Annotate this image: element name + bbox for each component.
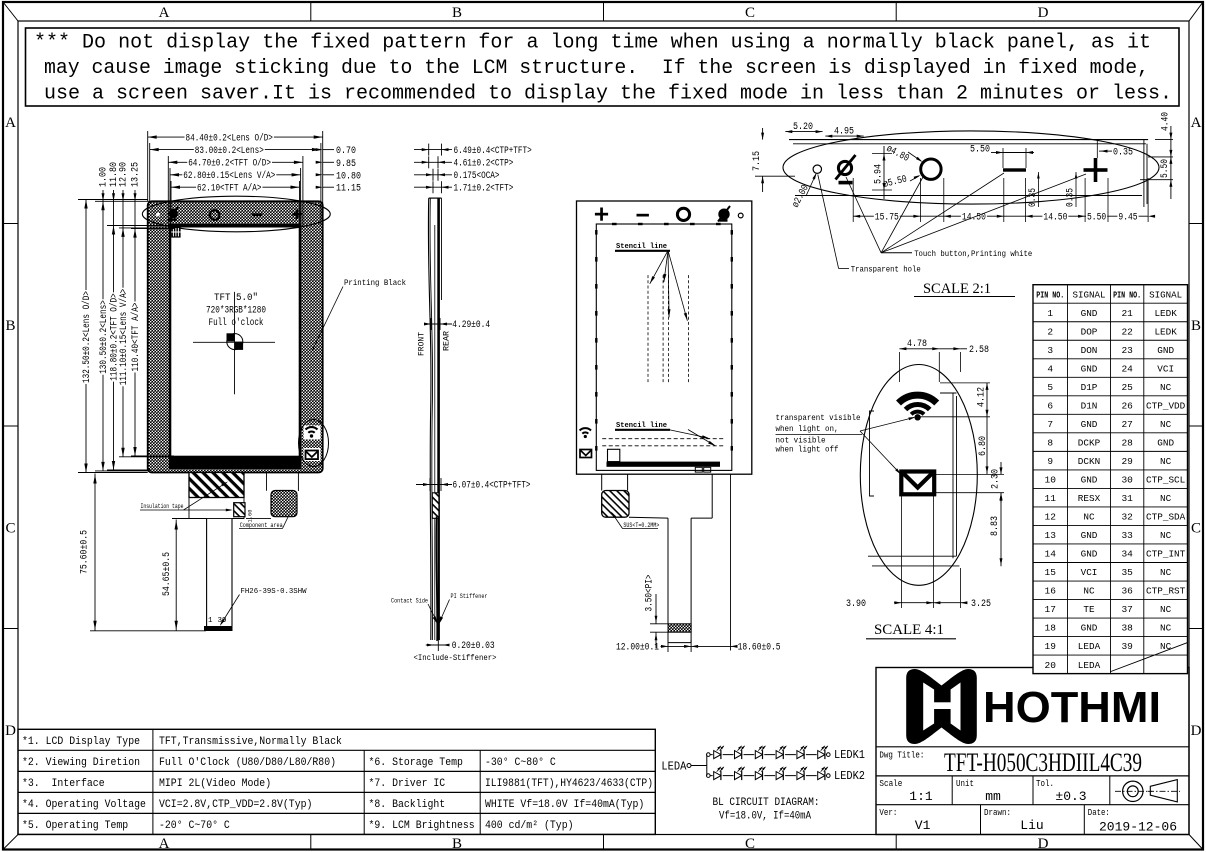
svg-text:CTP_RST: CTP_RST [1146, 586, 1185, 597]
svg-text:Liu: Liu [1020, 818, 1043, 833]
svg-text:62.10<TFT A/A>: 62.10<TFT A/A> [197, 182, 261, 194]
svg-text:may cause image sticking due t: may cause image sticking due to the LCM … [44, 57, 1149, 80]
svg-text:18: 18 [1045, 623, 1057, 634]
svg-text:B: B [5, 318, 15, 334]
svg-text:CTP_INT: CTP_INT [1146, 549, 1185, 560]
svg-text:4.29±0.4: 4.29±0.4 [452, 320, 490, 331]
svg-text:DOP: DOP [1081, 326, 1098, 337]
svg-text:SIGNAL: SIGNAL [1073, 289, 1106, 300]
svg-text:-20° C~70° C: -20° C~70° C [159, 820, 230, 832]
svg-text:CTP_SDA: CTP_SDA [1146, 512, 1185, 523]
svg-text:B: B [452, 5, 462, 21]
svg-text:D: D [1038, 5, 1049, 21]
svg-text:35: 35 [1121, 567, 1133, 578]
svg-text:Tol.: Tol. [1036, 779, 1054, 789]
svg-text:VCI: VCI [1081, 567, 1098, 578]
svg-text:4: 4 [1047, 363, 1053, 374]
svg-text:10: 10 [1045, 475, 1057, 486]
svg-text:WHITE Vf=18.0V If=40mA(Typ): WHITE Vf=18.0V If=40mA(Typ) [485, 799, 644, 811]
svg-text:Full O'Clock (U80/D80/L80/R80): Full O'Clock (U80/D80/L80/R80) [159, 757, 336, 769]
svg-text:13: 13 [1045, 530, 1057, 541]
svg-text:29: 29 [1121, 456, 1133, 467]
svg-text:11.15: 11.15 [336, 184, 361, 195]
svg-text:*** Do not display the fixed p: *** Do not display the fixed pattern for… [34, 32, 1151, 55]
svg-text:38: 38 [1121, 623, 1133, 634]
svg-text:5.50: 5.50 [970, 145, 990, 156]
svg-text:Contact Side: Contact Side [391, 598, 428, 605]
svg-text:13.25: 13.25 [131, 162, 142, 187]
svg-text:1.71±0.2<TFT>: 1.71±0.2<TFT> [454, 183, 514, 194]
svg-text:0.35: 0.35 [1066, 188, 1077, 207]
svg-text:transparent visible: transparent visible [776, 414, 861, 423]
svg-text:400 cd/m² (Typ): 400 cd/m² (Typ) [485, 820, 574, 832]
svg-text:4.78: 4.78 [907, 339, 927, 350]
svg-text:3.50<PI>: 3.50<PI> [645, 575, 656, 612]
svg-text:NC: NC [1160, 567, 1171, 578]
svg-text:GND: GND [1157, 438, 1174, 449]
svg-text:TFT,Transmissive,Normally Blac: TFT,Transmissive,Normally Black [159, 736, 342, 748]
svg-text:37: 37 [1121, 604, 1132, 615]
svg-text:VCI: VCI [1157, 363, 1174, 374]
svg-text:7.15: 7.15 [752, 151, 763, 171]
svg-text:*6. Storage Temp: *6. Storage Temp [369, 757, 463, 769]
svg-text:0.20±0.03: 0.20±0.03 [452, 641, 495, 652]
svg-text:16: 16 [1045, 586, 1057, 597]
svg-text:6.80: 6.80 [978, 436, 989, 456]
svg-text:Unit: Unit [956, 779, 974, 789]
svg-text:B: B [1191, 318, 1201, 334]
svg-text:REAR: REAR [443, 331, 452, 351]
svg-text:when light off: when light off [776, 446, 839, 455]
svg-text:DCKN: DCKN [1078, 456, 1100, 467]
svg-text:D1N: D1N [1081, 400, 1098, 411]
svg-text:14: 14 [1045, 549, 1057, 560]
svg-text:30: 30 [1121, 475, 1133, 486]
svg-text:LEDA: LEDA [1078, 660, 1101, 671]
svg-text:19: 19 [1045, 641, 1057, 652]
svg-text:FRONT: FRONT [418, 332, 427, 356]
svg-text:Drawn:: Drawn: [984, 808, 1011, 818]
svg-text:Ver:: Ver: [879, 808, 897, 818]
svg-text:26: 26 [1121, 400, 1133, 411]
svg-text:Date:: Date: [1088, 808, 1110, 818]
svg-text:LEDK2: LEDK2 [834, 770, 865, 783]
svg-text:75.60±0.5: 75.60±0.5 [80, 530, 91, 574]
svg-text:LEDK: LEDK [1154, 308, 1177, 319]
svg-text:32: 32 [1121, 512, 1133, 523]
svg-text:BL CIRCUIT DIAGRAM:: BL CIRCUIT DIAGRAM: [713, 797, 820, 809]
svg-text:Scale: Scale [879, 779, 902, 789]
svg-text:15.75: 15.75 [875, 212, 899, 223]
svg-text:11: 11 [1045, 493, 1057, 504]
svg-text:2019-12-06: 2019-12-06 [1099, 820, 1177, 835]
svg-text:NC: NC [1083, 586, 1094, 597]
svg-text:0.175<OCA>: 0.175<OCA> [454, 171, 500, 182]
svg-text:15: 15 [1045, 567, 1057, 578]
svg-text:D: D [1038, 836, 1049, 852]
svg-text:*8. Backlight: *8. Backlight [369, 799, 446, 811]
svg-text:4.12: 4.12 [976, 387, 987, 407]
svg-text:111.10±0.15<Lens V/A>: 111.10±0.15<Lens V/A> [118, 289, 130, 386]
svg-text:GND: GND [1081, 475, 1098, 486]
svg-text:ILI9881(TFT),HY4623/4633(CTP): ILI9881(TFT),HY4623/4633(CTP) [485, 778, 653, 790]
svg-text:6: 6 [1047, 400, 1053, 411]
svg-text:0.35: 0.35 [1113, 147, 1133, 158]
svg-text:NC: NC [1160, 623, 1171, 634]
svg-text:PIN NO.: PIN NO. [1113, 290, 1141, 300]
svg-text:720*3RGB*1280: 720*3RGB*1280 [206, 305, 266, 317]
svg-text:Transparent hole: Transparent hole [851, 266, 921, 275]
svg-text:PI Stiffener: PI Stiffener [451, 593, 488, 600]
svg-text:DON: DON [1081, 345, 1098, 356]
svg-text:D: D [5, 723, 16, 739]
svg-text:132.50±0.2<Lens O/D>: 132.50±0.2<Lens O/D> [81, 291, 93, 383]
svg-text:20: 20 [1045, 660, 1057, 671]
svg-text:TFT 5.0": TFT 5.0" [214, 292, 258, 304]
svg-text:27: 27 [1121, 419, 1132, 430]
svg-text:DCKP: DCKP [1078, 438, 1101, 449]
svg-text:V1: V1 [915, 818, 931, 833]
svg-text:SCALE 4:1: SCALE 4:1 [874, 622, 944, 638]
svg-text:NC: NC [1160, 530, 1171, 541]
svg-text:130.50±0.2<Lens>: 130.50±0.2<Lens> [99, 300, 110, 374]
svg-text:3.90: 3.90 [846, 599, 866, 610]
svg-text:GND: GND [1081, 549, 1098, 560]
svg-text:5.50: 5.50 [1087, 212, 1106, 223]
svg-text:GND: GND [1081, 363, 1098, 374]
svg-text:4.61±0.2<CTP>: 4.61±0.2<CTP> [454, 159, 514, 170]
svg-text:D: D [1191, 723, 1202, 739]
svg-text:LEDA: LEDA [661, 761, 686, 774]
svg-text:TE: TE [1083, 604, 1094, 615]
svg-text:22: 22 [1121, 326, 1133, 337]
svg-text:110.40<TFT A/A>: 110.40<TFT A/A> [130, 303, 142, 372]
svg-text:31: 31 [1121, 493, 1133, 504]
svg-text:7: 7 [1047, 419, 1053, 430]
svg-text:5: 5 [1047, 382, 1053, 393]
svg-text:Full o'clock: Full o'clock [209, 317, 264, 329]
svg-text:NC: NC [1160, 493, 1171, 504]
svg-text:<Include-Stiffener>: <Include-Stiffener> [414, 654, 497, 663]
svg-text:A: A [1191, 115, 1202, 131]
svg-text:9: 9 [1047, 456, 1053, 467]
svg-text:D1P: D1P [1081, 382, 1098, 393]
svg-text:HOTHMI: HOTHMI [983, 683, 1161, 732]
svg-text:NC: NC [1160, 419, 1171, 430]
svg-text:TFT-H050C3HDIIL4C39: TFT-H050C3HDIIL4C39 [944, 748, 1142, 777]
svg-text:CTP_VDD: CTP_VDD [1146, 400, 1185, 411]
svg-text:A: A [159, 836, 170, 852]
svg-text:NC: NC [1160, 456, 1171, 467]
svg-text:C: C [745, 836, 755, 852]
svg-text:B: B [452, 836, 462, 852]
svg-text:LEDA: LEDA [1078, 641, 1101, 652]
svg-text:24: 24 [1121, 363, 1133, 374]
svg-text:*1. LCD Display Type: *1. LCD Display Type [22, 736, 140, 748]
svg-text:SCALE 2:1: SCALE 2:1 [923, 281, 991, 297]
svg-text:FH26-39S-0.3SHW: FH26-39S-0.3SHW [241, 588, 307, 596]
svg-text:9.45: 9.45 [1118, 212, 1137, 223]
svg-text:12.00±0.1: 12.00±0.1 [616, 643, 659, 654]
svg-text:12.90: 12.90 [119, 162, 130, 187]
svg-text:*9. LCM Brightness: *9. LCM Brightness [369, 820, 475, 832]
svg-text:0.35: 0.35 [1028, 188, 1039, 207]
svg-text:Insulation tape: Insulation tape [141, 503, 184, 510]
svg-text:2.30: 2.30 [991, 469, 1002, 489]
svg-text:1: 1 [1047, 308, 1053, 319]
svg-text:2: 2 [1047, 326, 1053, 337]
svg-text:1:1: 1:1 [909, 789, 933, 804]
svg-text:GND: GND [1157, 345, 1174, 356]
svg-text:GND: GND [1081, 308, 1098, 319]
svg-text:Touch button,Printing white: Touch button,Printing white [914, 250, 1032, 259]
svg-text:VCI=2.8V,CTP_VDD=2.8V(Typ): VCI=2.8V,CTP_VDD=2.8V(Typ) [159, 799, 312, 811]
svg-text:NC: NC [1160, 604, 1171, 615]
svg-text:MIPI 2L(Video Mode): MIPI 2L(Video Mode) [159, 778, 271, 790]
svg-text:39: 39 [1121, 641, 1133, 652]
svg-text:5.20: 5.20 [793, 122, 813, 133]
svg-text:33: 33 [1121, 530, 1133, 541]
svg-text:*5. Operating Temp: *5. Operating Temp [22, 820, 128, 832]
svg-text:±0.3: ±0.3 [1055, 789, 1086, 804]
svg-text:LEDK: LEDK [1154, 326, 1177, 337]
svg-text:C: C [745, 5, 755, 21]
svg-text:-30° C~80° C: -30° C~80° C [485, 757, 556, 769]
svg-text:SIGNAL: SIGNAL [1149, 289, 1182, 300]
svg-text:21: 21 [1121, 308, 1133, 319]
svg-text:NC: NC [1083, 512, 1094, 523]
svg-text:GND: GND [1081, 623, 1098, 634]
svg-text:12: 12 [1045, 512, 1057, 523]
svg-text:A: A [5, 115, 16, 131]
svg-text:6.49±0.4<CTP+TFT>: 6.49±0.4<CTP+TFT> [454, 146, 532, 157]
svg-text:17: 17 [1045, 604, 1056, 615]
svg-text:9.85: 9.85 [336, 159, 356, 170]
svg-text:C: C [1191, 520, 1201, 536]
svg-text:4.95: 4.95 [834, 126, 854, 137]
svg-text:C: C [5, 520, 15, 536]
svg-text:10.80: 10.80 [336, 171, 361, 182]
svg-text:1: 1 [208, 617, 213, 625]
svg-text:18.60±0.5: 18.60±0.5 [738, 643, 781, 654]
svg-text:23: 23 [1121, 345, 1133, 356]
svg-text:28: 28 [1121, 438, 1133, 449]
svg-text:CTP_SCL: CTP_SCL [1146, 475, 1185, 486]
svg-text:54.65±0.5: 54.65±0.5 [162, 552, 173, 596]
svg-text:not visible: not visible [776, 437, 826, 446]
svg-text:5.50: 5.50 [1160, 159, 1171, 178]
svg-text:8: 8 [1047, 438, 1053, 449]
svg-text:Printing Black: Printing Black [344, 279, 406, 288]
svg-text:PIN NO.: PIN NO. [1036, 290, 1064, 300]
svg-text:25: 25 [1121, 382, 1133, 393]
svg-text:*7. Driver IC: *7. Driver IC [369, 778, 446, 790]
svg-text:Component area: Component area [240, 522, 283, 529]
svg-text:1.00: 1.00 [99, 167, 110, 187]
svg-text:SUS<T=0.2MM>: SUS<T=0.2MM> [623, 522, 659, 529]
svg-text:GND: GND [1081, 530, 1098, 541]
svg-text:Dwg Title:: Dwg Title: [879, 751, 924, 761]
svg-text:*4. Operating Voltage: *4. Operating Voltage [22, 799, 146, 811]
svg-text:RESX: RESX [1078, 493, 1101, 504]
svg-text:A: A [159, 5, 170, 21]
svg-text:2.58: 2.58 [969, 345, 989, 356]
svg-text:*3. Interface: *3. Interface [22, 778, 105, 790]
svg-text:6.07±0.4<CTP+TFT>: 6.07±0.4<CTP+TFT> [453, 481, 531, 492]
svg-text:*2. Viewing Diretion: *2. Viewing Diretion [22, 757, 140, 769]
svg-text:mm: mm [985, 789, 1001, 804]
svg-text:GND: GND [1081, 419, 1098, 430]
svg-text:8.83: 8.83 [990, 516, 1001, 536]
svg-text:34: 34 [1121, 549, 1133, 560]
svg-text:when light on,: when light on, [776, 425, 839, 434]
svg-text:4.40: 4.40 [1161, 112, 1172, 131]
svg-text:1.60: 1.60 [248, 510, 254, 523]
svg-text:0.70: 0.70 [336, 146, 356, 157]
svg-text:LEDK1: LEDK1 [834, 749, 865, 762]
svg-text:Vf=18.0V, If=40mA: Vf=18.0V, If=40mA [719, 811, 811, 823]
svg-text:3.25: 3.25 [971, 599, 991, 610]
svg-text:NC: NC [1160, 382, 1171, 393]
svg-text:3: 3 [1047, 345, 1053, 356]
svg-text:use a screen saver.It is recom: use a screen saver.It is recommended to … [44, 83, 1172, 106]
svg-text:36: 36 [1121, 586, 1133, 597]
svg-text:14.50: 14.50 [1043, 212, 1067, 223]
